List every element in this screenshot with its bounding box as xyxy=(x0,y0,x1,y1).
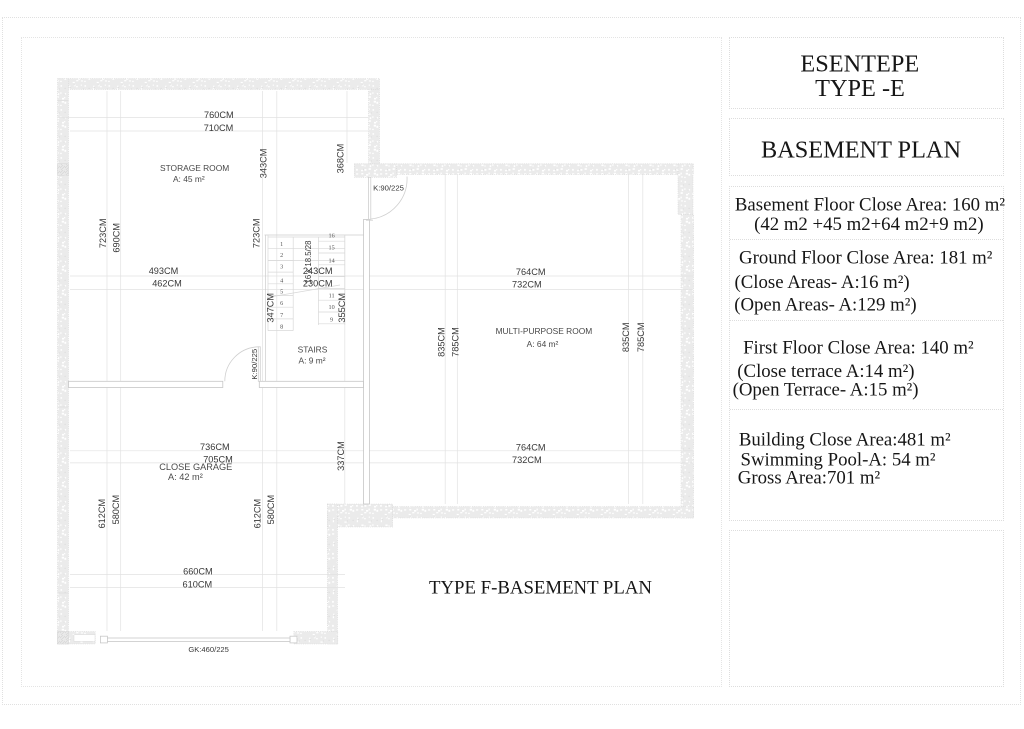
svg-text:(Close Areas- A:16 m²): (Close Areas- A:16 m²) xyxy=(735,272,910,293)
svg-text:Basement Floor Close Area: 160: Basement Floor Close Area: 160 m² xyxy=(735,195,1005,216)
svg-text:(Open Terrace- A:15 m²): (Open Terrace- A:15 m²) xyxy=(733,379,919,400)
svg-text:Ground Floor Close Area: 181 m: Ground Floor Close Area: 181 m² xyxy=(739,248,993,269)
svg-text:BASEMENT PLAN: BASEMENT PLAN xyxy=(761,136,961,163)
svg-text:TYPE F-BASEMENT PLAN: TYPE F-BASEMENT PLAN xyxy=(429,578,652,599)
svg-text:TYPE -E: TYPE -E xyxy=(815,75,905,102)
svg-text:ESENTEPE: ESENTEPE xyxy=(800,50,919,77)
svg-text:First Floor Close Area: 140 m²: First Floor Close Area: 140 m² xyxy=(743,338,974,359)
svg-text:Gross Area:701 m²: Gross Area:701 m² xyxy=(738,468,881,489)
svg-text:(Open Areas- A:129 m²): (Open Areas- A:129 m²) xyxy=(734,295,916,316)
svg-text:Building Close Area:481 m²: Building Close Area:481 m² xyxy=(739,430,951,451)
svg-text:(42 m2 +45 m2+64 m2+9 m2): (42 m2 +45 m2+64 m2+9 m2) xyxy=(754,214,984,235)
